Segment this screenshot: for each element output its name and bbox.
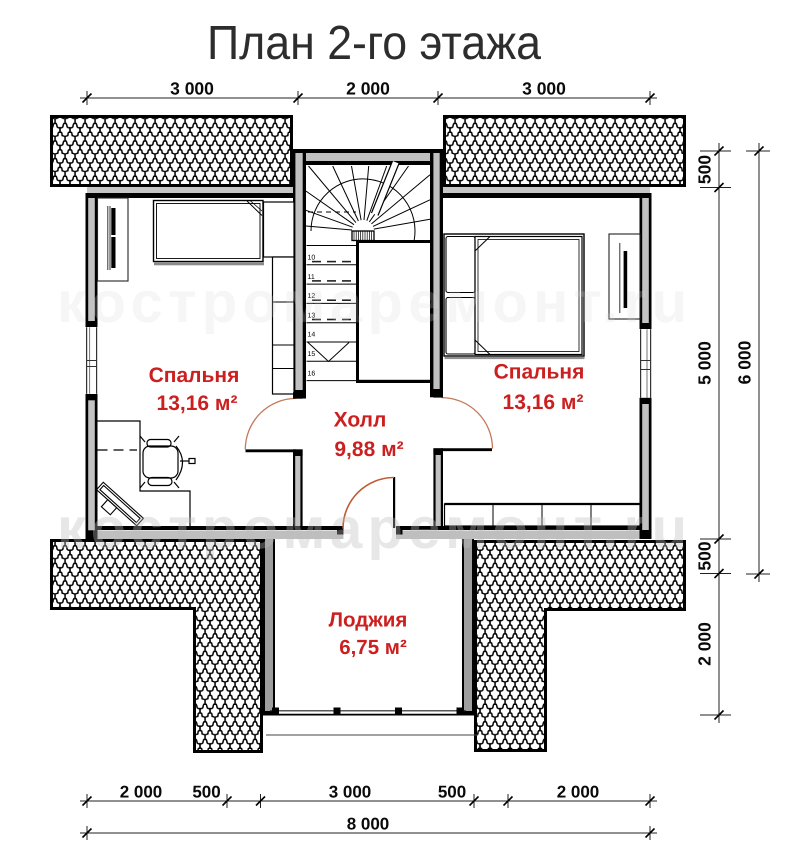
svg-text:13,16 м²: 13,16 м² bbox=[157, 392, 238, 415]
svg-text:костромаремонт.ru: костромаремонт.ru bbox=[57, 270, 687, 335]
svg-text:3 000: 3 000 bbox=[329, 783, 372, 802]
svg-text:2 000: 2 000 bbox=[695, 622, 715, 666]
svg-text:Холл: Холл bbox=[334, 409, 387, 432]
svg-text:13,16 м²: 13,16 м² bbox=[503, 391, 584, 414]
svg-text:2 000: 2 000 bbox=[120, 783, 163, 802]
svg-text:16: 16 bbox=[308, 370, 316, 377]
svg-text:10: 10 bbox=[308, 255, 316, 262]
svg-text:500: 500 bbox=[695, 541, 715, 570]
svg-text:Спальня: Спальня bbox=[494, 361, 585, 384]
svg-text:15: 15 bbox=[308, 351, 316, 358]
svg-text:костромаремонт.ru: костромаремонт.ru bbox=[57, 496, 687, 561]
svg-text:2 000: 2 000 bbox=[557, 783, 600, 802]
svg-text:3 000: 3 000 bbox=[522, 79, 566, 99]
svg-text:Спальня: Спальня bbox=[149, 364, 240, 387]
svg-text:500: 500 bbox=[695, 155, 715, 184]
svg-text:500: 500 bbox=[438, 783, 466, 802]
svg-text:5 000: 5 000 bbox=[695, 341, 715, 385]
svg-text:2 000: 2 000 bbox=[346, 79, 390, 99]
svg-text:6 000: 6 000 bbox=[735, 340, 755, 384]
svg-text:3 000: 3 000 bbox=[170, 79, 214, 99]
svg-text:500: 500 bbox=[192, 783, 220, 802]
svg-text:План 2-го этажа: План 2-го этажа bbox=[207, 17, 541, 70]
svg-text:8 000: 8 000 bbox=[347, 815, 390, 834]
svg-text:6,75 м²: 6,75 м² bbox=[339, 636, 407, 659]
svg-text:Лоджия: Лоджия bbox=[329, 609, 408, 632]
svg-text:9,88 м²: 9,88 м² bbox=[334, 438, 403, 461]
